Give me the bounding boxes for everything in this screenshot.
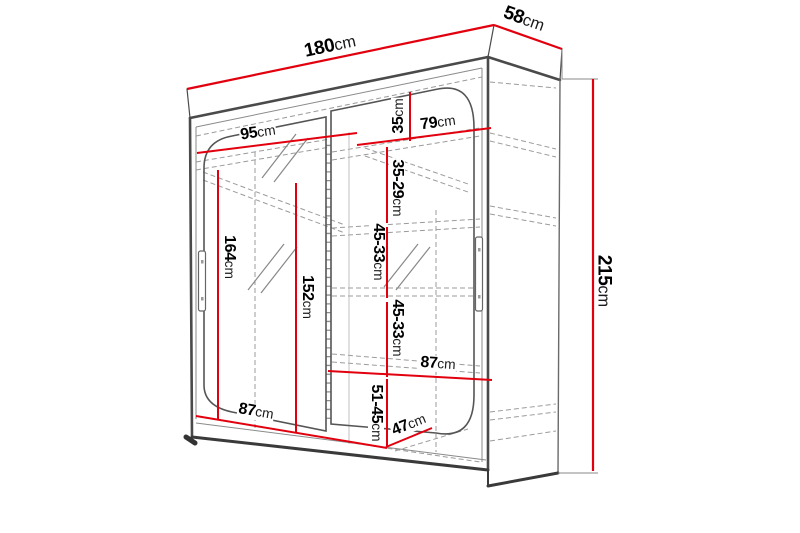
dim-label-164: 164cm bbox=[221, 234, 237, 280]
right-door-handle bbox=[476, 237, 483, 311]
dim-label-35-29: 35-29cm bbox=[389, 158, 405, 217]
dimension-line-87-left bbox=[196, 416, 387, 448]
left-door-handle bbox=[199, 251, 206, 311]
dim-label-51-45: 51-45cm bbox=[368, 383, 384, 442]
dimension-line-87-right bbox=[328, 371, 492, 380]
dim-label-87-right: 87cm bbox=[419, 355, 457, 374]
wardrobe-dimension-diagram: 180cm 58cm 215cm 95cm 35cm 79cm 35-29cm … bbox=[0, 0, 800, 533]
dim-label-152: 152cm bbox=[299, 274, 315, 320]
dim-label-215: 215cm bbox=[595, 254, 614, 308]
dim-label-45-33-a: 45-33cm bbox=[370, 222, 386, 281]
wardrobe-line-drawing bbox=[0, 0, 800, 533]
dim-label-35: 35cm bbox=[391, 97, 407, 134]
dim-label-45-33-b: 45-33cm bbox=[389, 298, 405, 357]
